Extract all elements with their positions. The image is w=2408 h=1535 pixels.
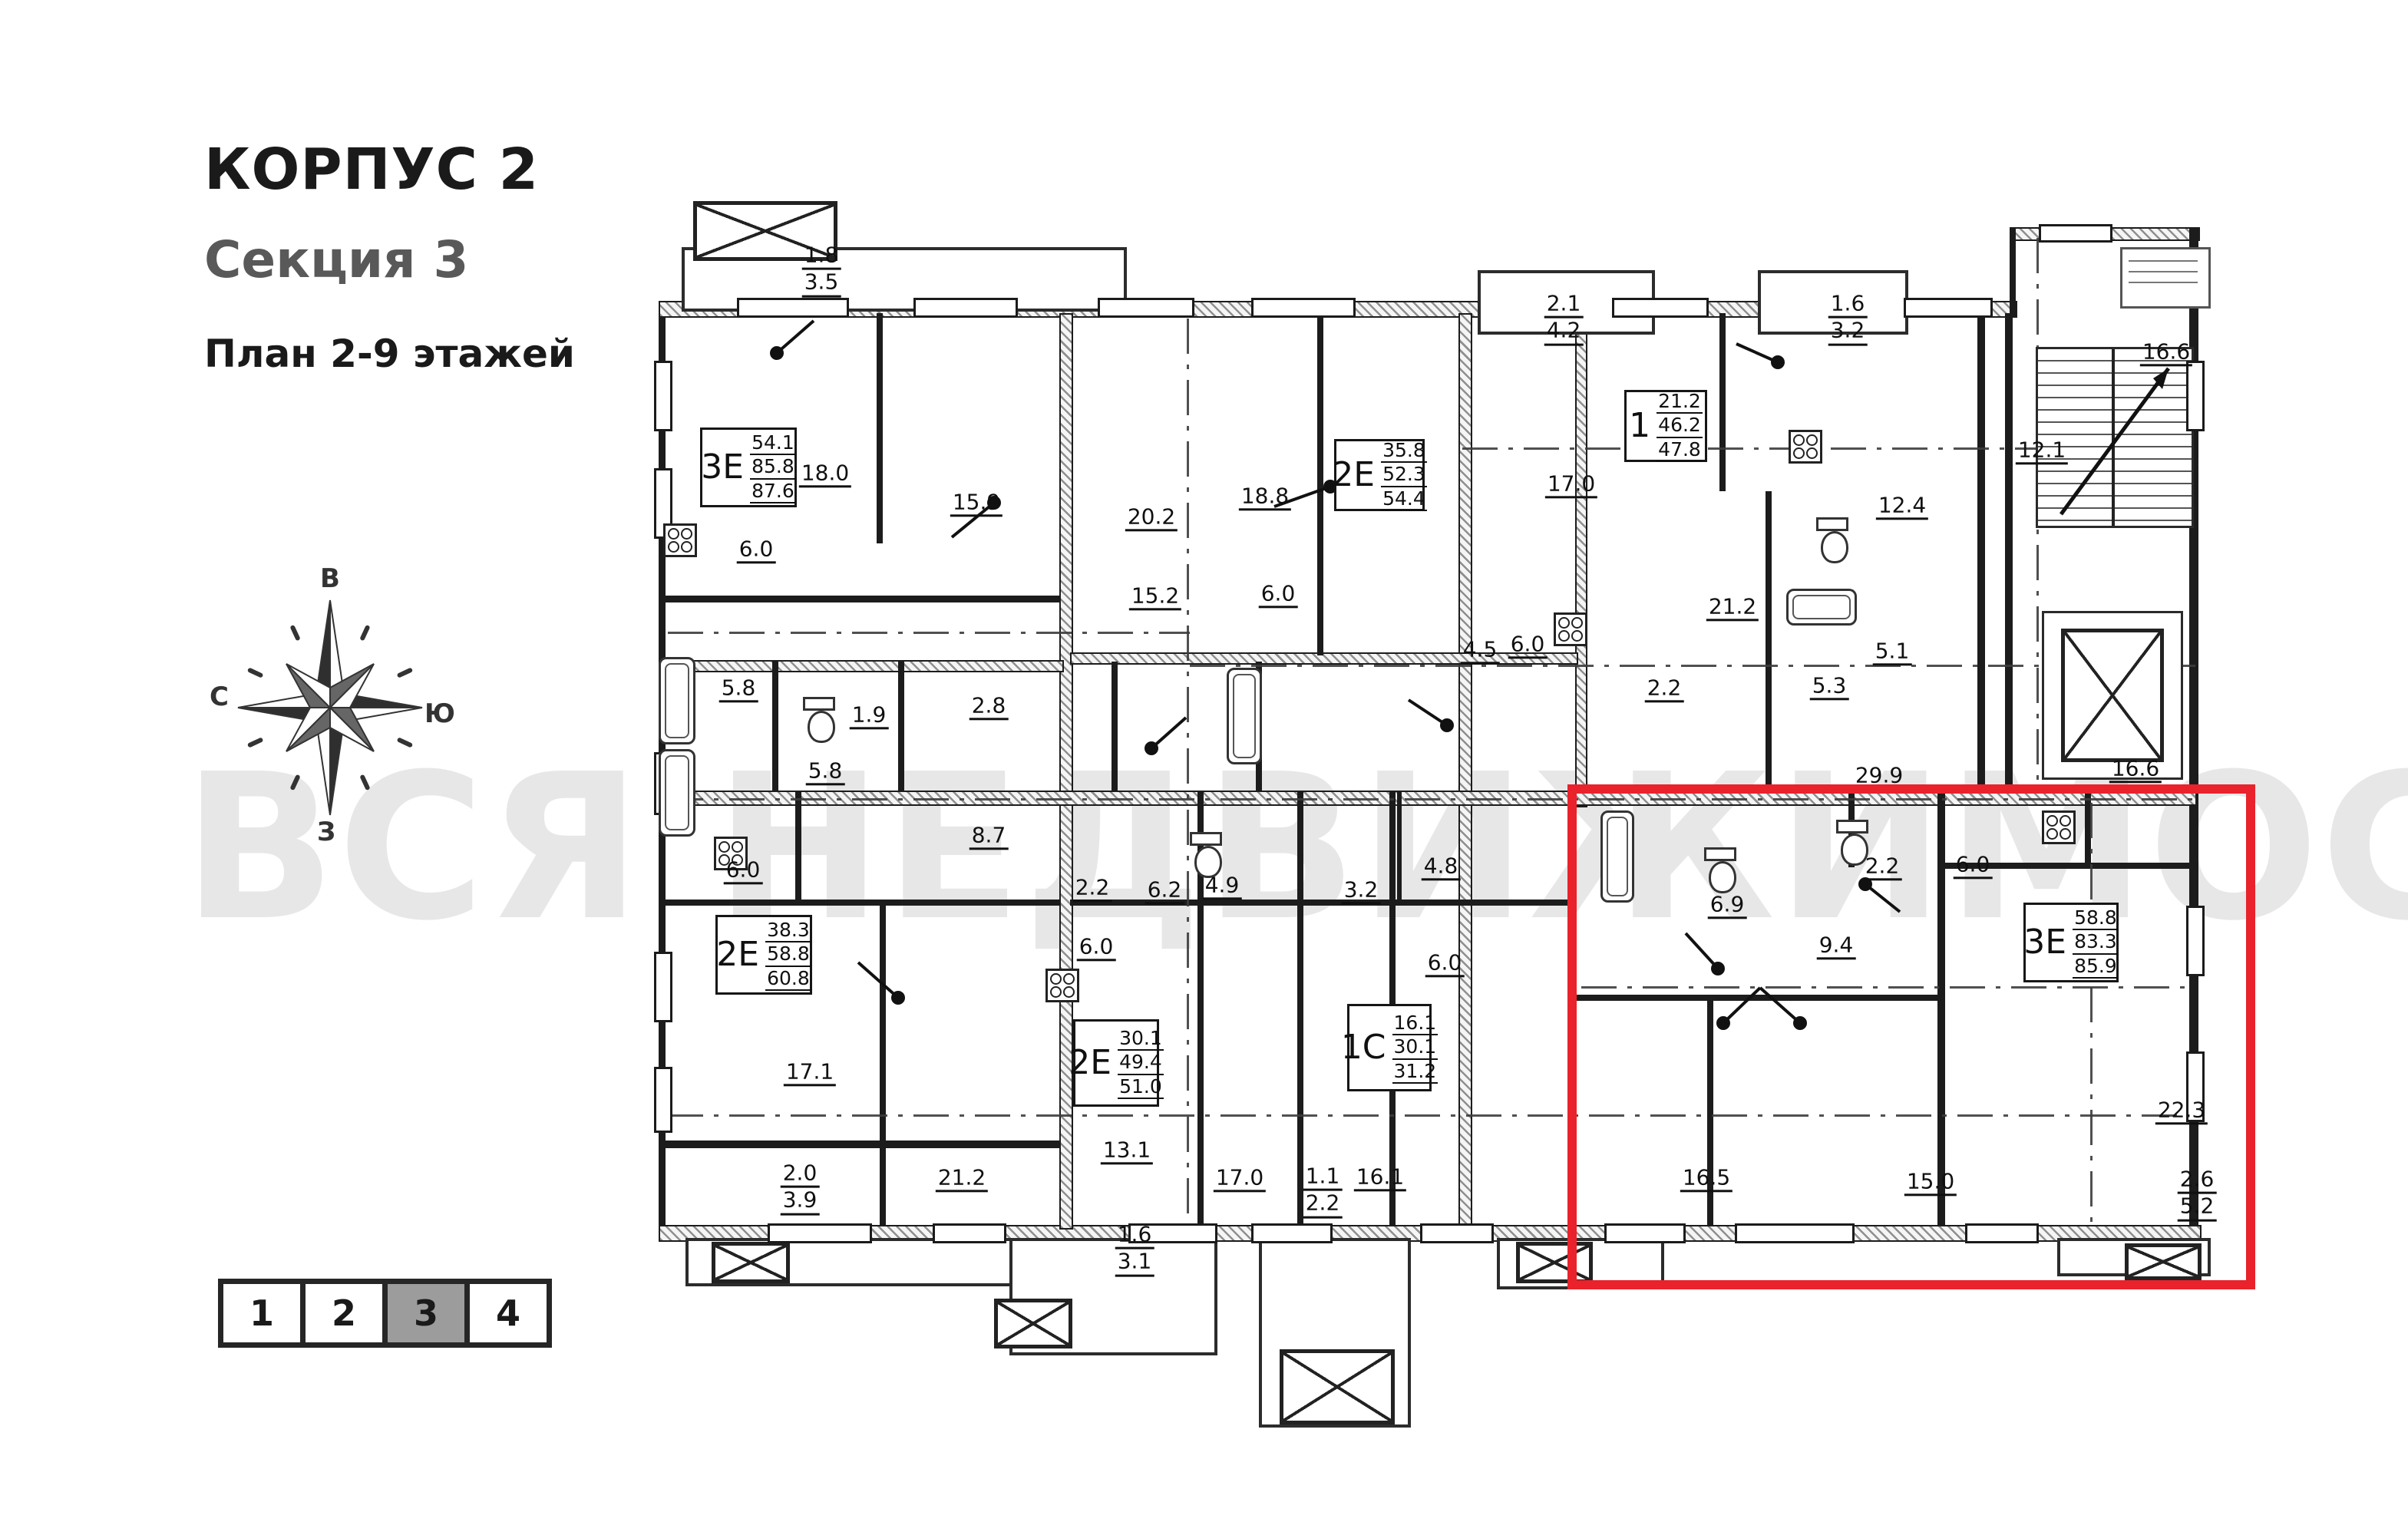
room-area-label: 6.0 [1425,950,1465,977]
apartment-label-2e-51: 2Е 30.149.451.0 [1073,1019,1159,1107]
bathtub-icon [1786,589,1857,626]
apartment-label-3e-87: 3Е 54.185.887.6 [700,427,797,507]
room-area-label: 8.7 [969,823,1009,850]
stove-icon [1045,969,1079,1002]
room-area-label: 6.0 [1077,934,1116,961]
highlighted-apartment-frame[interactable] [1567,784,2255,1289]
room-area-label: 1.83.5 [802,243,841,298]
room-area-label: 6.0 [1259,581,1298,608]
room-area-label: 21.2 [1706,594,1759,621]
room-area-label: 5.3 [1810,673,1849,700]
stove-icon [1554,612,1587,646]
room-area-label: 16.6 [2109,756,2162,783]
room-area-label: 6.0 [1508,632,1548,659]
bathtub-icon [659,749,695,837]
room-area-label: 20.2 [1125,504,1178,531]
room-area-label: 4.5 [1461,637,1500,664]
room-area-label: 5.8 [806,758,845,785]
toilet-icon [1821,517,1848,563]
room-area-label: 17.0 [1545,471,1597,498]
room-area-label: 5.1 [1873,639,1912,665]
room-area-label: 2.03.9 [781,1161,820,1216]
stove-icon [663,523,697,557]
room-area-label: 2.8 [969,693,1009,720]
room-area-label: 2.2 [1073,875,1112,902]
room-area-label: 3.2 [1342,877,1381,904]
room-area-label: 17.1 [784,1059,836,1086]
room-area-label: 16.6 [2140,339,2192,366]
apartment-label-1s-31: 1С 16.130.131.2 [1347,1004,1432,1091]
page-title: КОРПУС 2 [204,137,539,203]
section-tab-3-active[interactable]: 3 [388,1284,470,1342]
room-area-label: 16.1 [1354,1164,1406,1191]
room-area-label: 15.2 [1129,583,1181,610]
section-selector: 1 2 3 4 [218,1279,552,1348]
room-area-label: 6.0 [737,536,776,563]
room-area-label: 12.1 [2016,437,2068,464]
room-area-label: 1.12.2 [1303,1164,1343,1219]
apartment-label-1-47: 1 21.246.247.8 [1624,390,1707,462]
room-area-label: 2.14.2 [1544,292,1584,346]
toilet-icon [1194,832,1222,878]
room-area-label: 1.9 [850,702,889,729]
room-area-label: 18.8 [1239,484,1291,510]
floor-range-label: План 2-9 этажей [204,332,575,376]
toilet-icon [808,697,835,743]
bathtub-icon [659,657,695,744]
room-area-label: 13.1 [1101,1137,1153,1164]
apartment-label-2e-60: 2Е 38.358.860.8 [715,915,812,995]
room-area-label: 5.8 [719,675,758,702]
room-area-label: 18.0 [799,460,851,487]
room-area-label: 6.2 [1145,877,1184,904]
section-tab-4[interactable]: 4 [470,1284,547,1342]
room-area-label: 6.0 [724,857,763,884]
room-area-label: 15.9 [950,490,1003,517]
room-area-label: 4.8 [1422,853,1461,880]
room-area-label: 21.2 [936,1165,988,1192]
section-tab-1[interactable]: 1 [223,1284,306,1342]
room-area-label: 17.0 [1214,1165,1266,1192]
section-subtitle: Секция 3 [204,230,468,289]
room-area-label: 1.63.1 [1115,1223,1154,1277]
room-area-label: 2.2 [1645,675,1684,702]
room-area-label: 12.4 [1876,493,1928,520]
bathtub-icon [1227,668,1262,764]
room-area-label: 1.63.2 [1828,292,1868,346]
section-tab-2[interactable]: 2 [306,1284,388,1342]
room-area-label: 4.9 [1203,873,1242,900]
apartment-label-2e-54: 2Е 35.852.354.4 [1334,439,1425,511]
stove-icon [1789,430,1822,464]
